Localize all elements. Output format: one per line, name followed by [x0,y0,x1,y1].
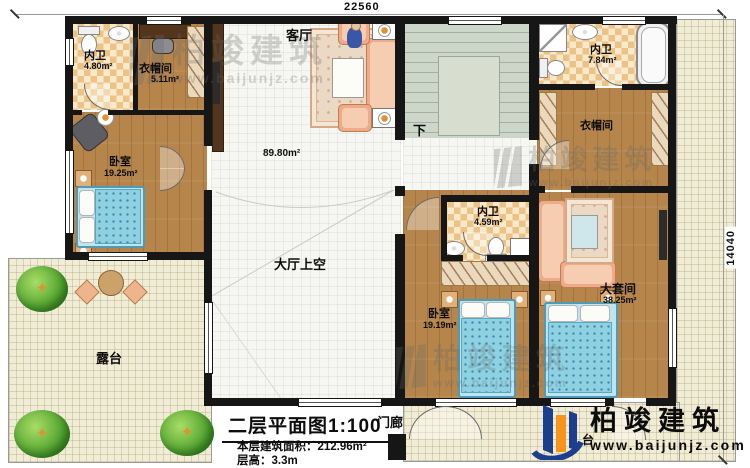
window [448,16,502,25]
wall [395,16,405,140]
lamp-icon [378,24,391,37]
wall [487,255,537,261]
lamp-icon [378,112,391,125]
room-area-bed2: 19.19m² [423,321,457,331]
wall [204,398,300,406]
cloak2-rack-right [651,92,669,166]
living-armchair-bottom [338,104,372,132]
window [65,150,74,234]
window [204,302,213,374]
room-label-hallvoid: 大厅上空 [274,258,326,272]
living-coffee-table [332,58,364,98]
toilet-icon [547,60,565,76]
terrace-table [98,270,124,296]
wall [571,186,676,193]
landing-corridor-floor [403,138,537,192]
wall [395,234,405,406]
tree-icon [16,266,68,312]
tree-icon [14,410,70,458]
wall [108,110,205,115]
room-area-cloak1: 5.11m² [151,75,179,85]
floor-plan: 柏竣建筑 www.baijunjz.com 柏竣建筑 www.baijunjz.… [0,0,750,468]
plan-floor-height-line: 层高：3.3m [237,452,298,468]
room-area-living: 89.80m² [263,148,300,159]
stairs-down-label: 下 [413,124,426,138]
wall [403,398,435,406]
room-area-suite: 38.25m² [603,296,637,306]
window [602,16,646,25]
nightstand [441,291,458,308]
person-figure [347,27,362,48]
wall [441,255,463,261]
cloak1-rack [187,26,205,98]
pillow [486,302,510,318]
wall [441,202,447,261]
suite-coffee-table [571,215,598,249]
bathtub-icon [636,22,671,88]
pillow [79,190,95,216]
brand-logo-icon [530,400,584,460]
room-area-bed1: 19.25m² [104,169,138,179]
wall [537,186,545,193]
window [668,308,677,368]
brand-url: www.baijunjz.com [590,437,746,453]
wall [441,195,537,202]
suite-quilt [548,322,612,393]
wall [204,16,212,146]
dimension-height: 14040 [725,227,737,269]
wall [71,110,82,115]
pillow [461,302,485,318]
cloak1-chair [152,38,174,54]
pillow [580,305,610,322]
porch-pillar [388,434,406,460]
room-label-living: 客厅 [286,29,312,43]
sink-icon [572,24,598,40]
pillow [548,305,578,322]
room-area-bath1: 4.80m² [84,62,113,72]
bed2-quilt [461,318,511,393]
bed2-closet [441,261,533,286]
brand-logo: 柏竣建筑 www.baijunjz.com [530,400,746,460]
stairs-landing [438,56,500,136]
tree-icon [160,410,214,456]
room-label-terrace: 露台 [96,352,122,366]
window [298,398,382,407]
dimension-line-right [723,14,724,462]
wall [204,190,212,304]
dimension-width: 22560 [340,1,384,13]
window [65,38,74,66]
pillow [79,217,95,243]
wall [529,16,539,140]
room-label-bed1: 卧室 [109,156,131,168]
wall [133,24,138,110]
cloak1-desk [139,24,191,39]
bed1-quilt [95,189,141,244]
dimension-line-top [14,14,722,15]
room-area-bath3: 4.59m² [474,218,503,228]
window [146,16,182,25]
room-area-bath2: 7.84m² [588,56,617,66]
window [88,252,148,261]
room-label-cloak2: 衣帽间 [580,120,613,132]
nightstand [75,170,92,187]
brand-name: 柏竣建筑 [590,408,746,435]
tv-icon [213,62,220,104]
wall [395,186,405,196]
room-label-bed2: 卧室 [428,308,450,320]
shower-icon [539,24,567,52]
suite-tv-icon [659,210,667,260]
wall [537,84,595,90]
sink-icon [108,26,130,41]
